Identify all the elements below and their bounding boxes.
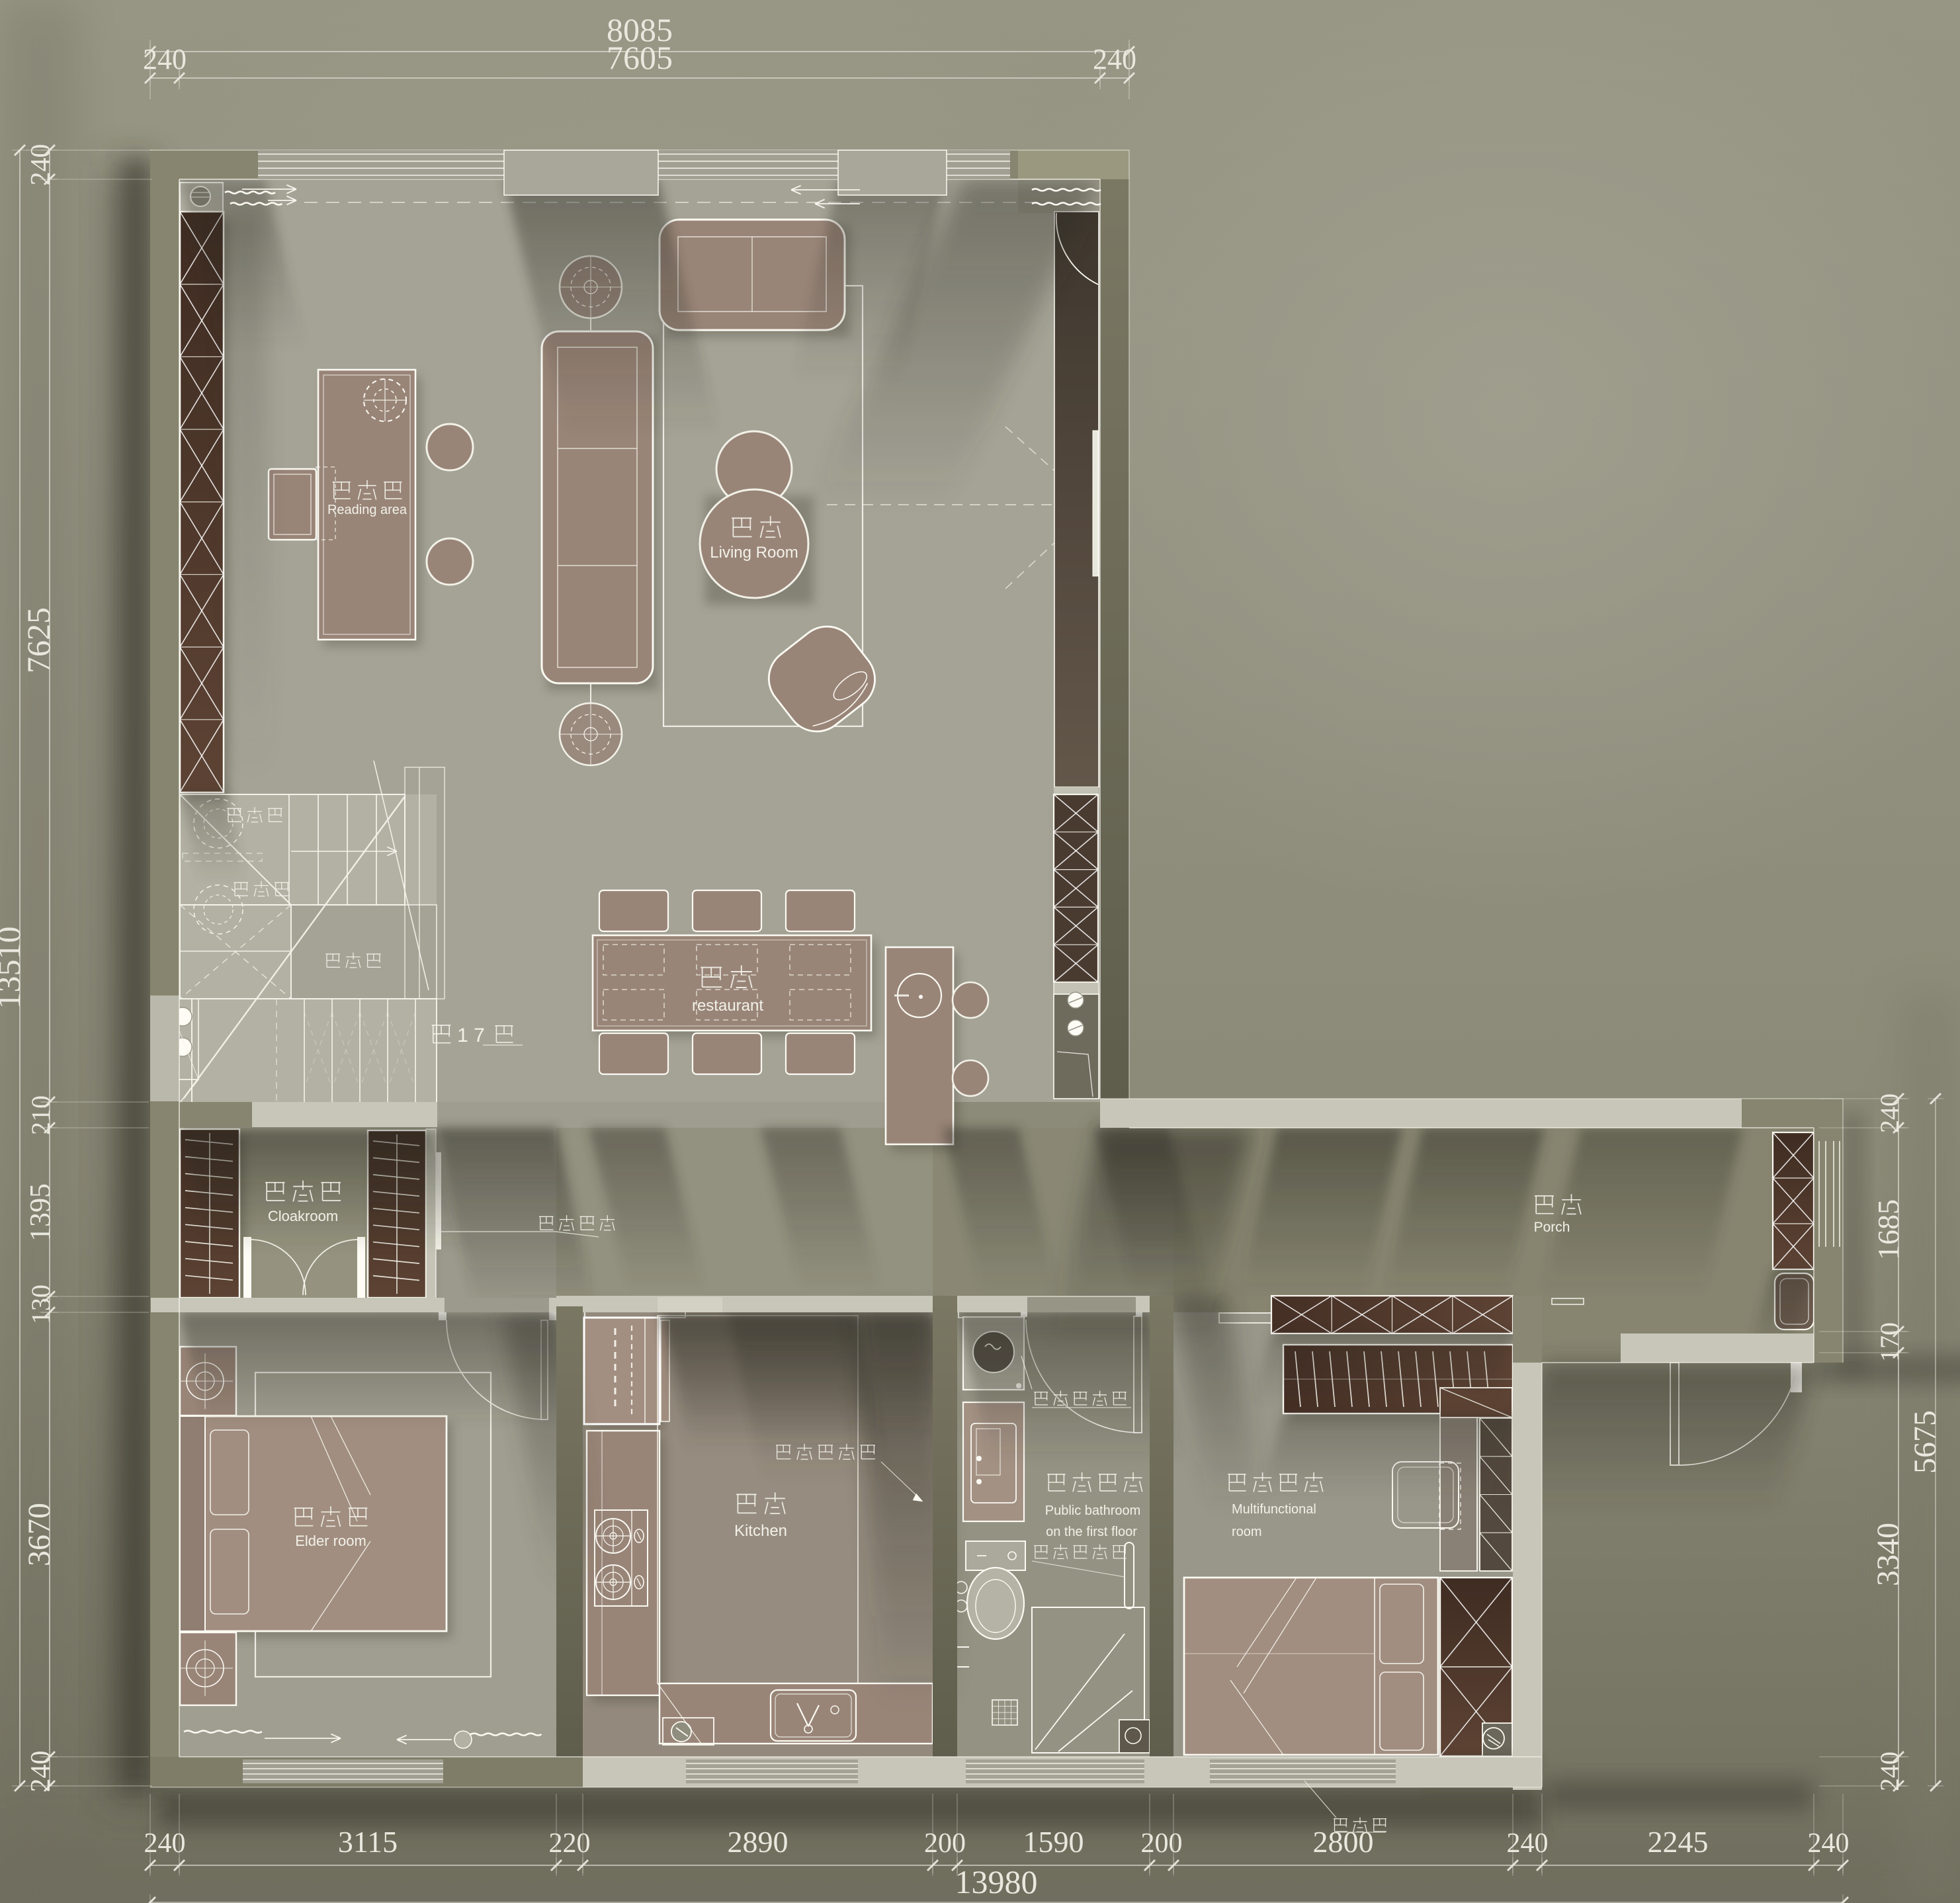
svg-text:3340: 3340	[1871, 1523, 1906, 1586]
svg-text:on the first floor: on the first floor	[1046, 1525, 1137, 1539]
svg-text:7605: 7605	[607, 39, 673, 76]
svg-text:7625: 7625	[20, 607, 57, 673]
svg-text:2800: 2800	[1313, 1825, 1374, 1859]
svg-text:Kitchen: Kitchen	[734, 1522, 787, 1540]
svg-text:Elder room: Elder room	[295, 1533, 366, 1549]
svg-text:200: 200	[1141, 1828, 1183, 1859]
svg-text:1590: 1590	[1023, 1825, 1084, 1859]
svg-text:13980: 13980	[955, 1863, 1038, 1900]
svg-text:1 7: 1 7	[457, 1025, 485, 1046]
svg-text:3115: 3115	[338, 1825, 398, 1859]
svg-text:220: 220	[549, 1828, 591, 1859]
svg-text:3670: 3670	[22, 1503, 57, 1566]
svg-text:240: 240	[1875, 1093, 1904, 1133]
svg-text:Living Room: Living Room	[710, 544, 798, 562]
svg-text:Porch: Porch	[1534, 1220, 1570, 1235]
svg-text:5675: 5675	[1908, 1410, 1943, 1474]
svg-text:240: 240	[1875, 1752, 1904, 1791]
svg-text:Public bathroom: Public bathroom	[1045, 1503, 1141, 1518]
svg-text:Cloakroom: Cloakroom	[268, 1208, 338, 1224]
svg-text:240: 240	[143, 43, 187, 75]
svg-text:1685: 1685	[1871, 1199, 1905, 1260]
svg-text:restaurant: restaurant	[692, 997, 763, 1015]
svg-text:Reading area: Reading area	[327, 503, 407, 517]
svg-text:240: 240	[1093, 43, 1136, 75]
svg-text:130: 130	[26, 1285, 56, 1324]
svg-text:200: 200	[924, 1828, 966, 1859]
svg-text:170: 170	[1875, 1322, 1904, 1362]
svg-text:210: 210	[26, 1095, 56, 1135]
svg-text:Multifunctional: Multifunctional	[1232, 1502, 1316, 1517]
svg-text:room: room	[1232, 1525, 1262, 1539]
svg-text:1395: 1395	[24, 1183, 56, 1242]
svg-text:13510: 13510	[0, 927, 27, 1009]
svg-text:2245: 2245	[1648, 1825, 1709, 1859]
svg-text:2890: 2890	[728, 1825, 788, 1859]
